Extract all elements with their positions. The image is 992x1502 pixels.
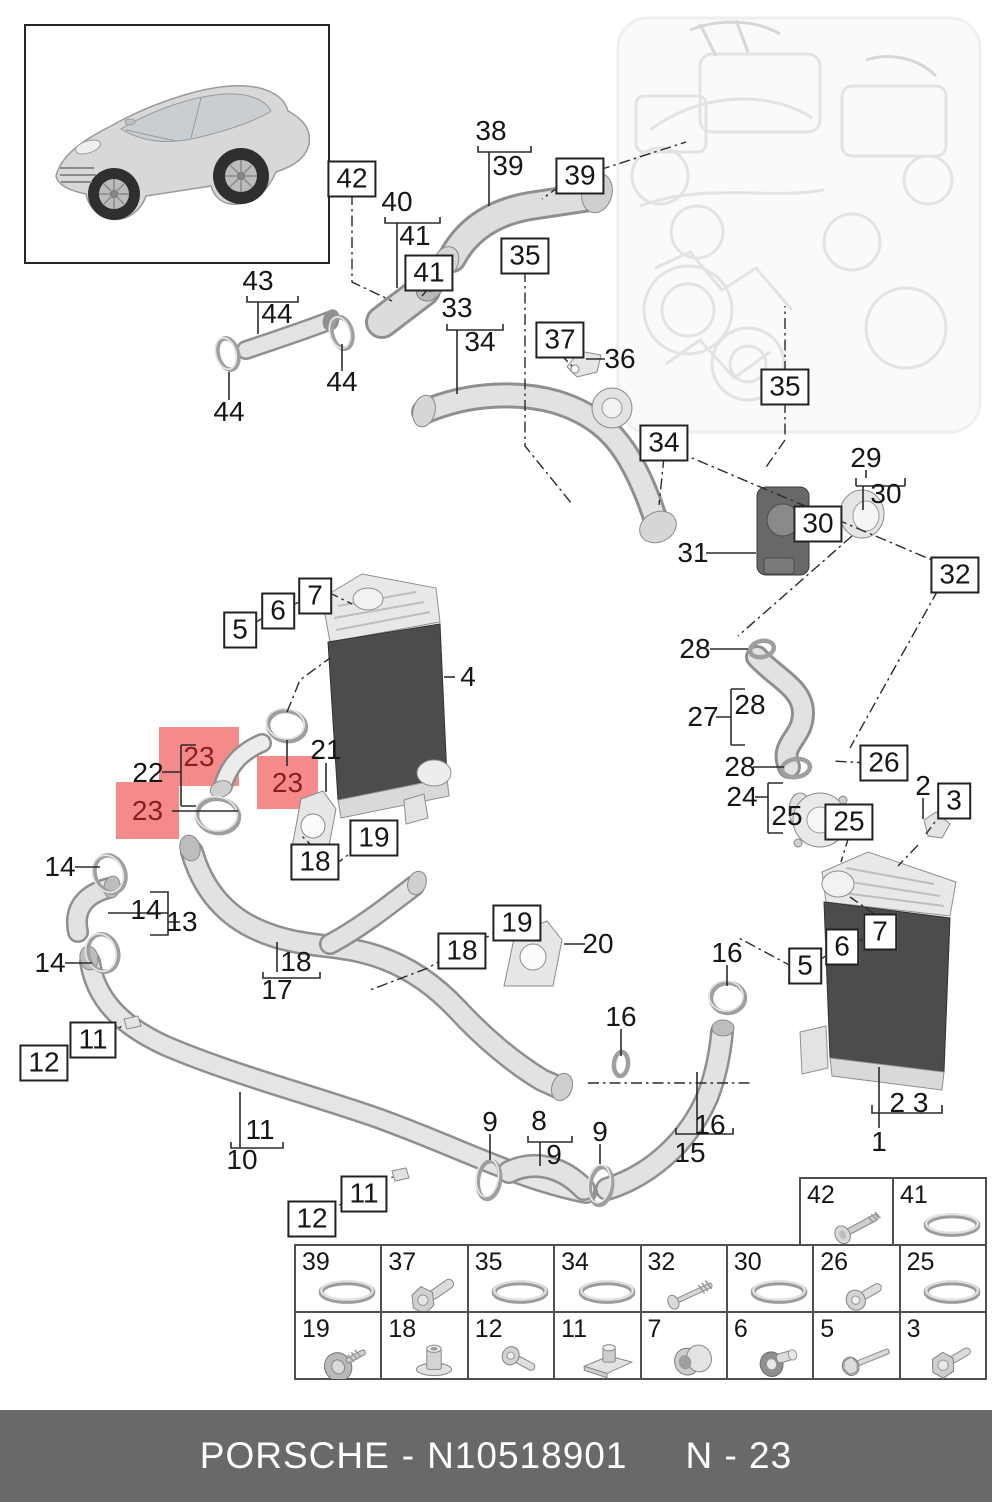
callout-15[interactable]: 15: [674, 1138, 705, 1168]
callout-18[interactable]: 18: [280, 947, 311, 977]
callout-23-selected[interactable]: 23: [132, 796, 163, 826]
callout-2-3[interactable]: 2 3: [890, 1088, 929, 1118]
callout-2[interactable]: 2: [915, 771, 931, 801]
callout-3[interactable]: 3: [937, 783, 971, 820]
callout-20[interactable]: 20: [582, 929, 613, 959]
callout-41[interactable]: 41: [404, 255, 453, 292]
callout-34[interactable]: 34: [639, 425, 688, 462]
callout-6[interactable]: 6: [825, 929, 859, 966]
callout-11[interactable]: 11: [340, 1176, 387, 1213]
callout-8[interactable]: 8: [531, 1106, 547, 1136]
callout-16[interactable]: 16: [605, 1002, 636, 1032]
callout-36[interactable]: 36: [604, 344, 635, 374]
callout-5[interactable]: 5: [223, 612, 257, 649]
callout-42[interactable]: 42: [327, 161, 376, 198]
callout-13[interactable]: 13: [166, 907, 197, 937]
callout-35[interactable]: 35: [760, 369, 809, 406]
callout-29[interactable]: 29: [850, 443, 881, 473]
callout-14[interactable]: 14: [34, 948, 65, 978]
callout-28[interactable]: 28: [679, 634, 710, 664]
brand-label: PORSCHE: [200, 1435, 390, 1477]
callout-39[interactable]: 39: [555, 158, 604, 195]
callout-32[interactable]: 32: [930, 557, 979, 594]
footer-bar: PORSCHE - N10518901 N - 23: [0, 1410, 992, 1502]
callout-16[interactable]: 16: [711, 938, 742, 968]
callout-7[interactable]: 7: [863, 914, 897, 951]
callout-22[interactable]: 22: [132, 758, 163, 788]
callout-25[interactable]: 25: [771, 801, 802, 831]
callout-28[interactable]: 28: [734, 690, 765, 720]
callout-19[interactable]: 19: [492, 905, 541, 942]
callout-27[interactable]: 27: [687, 702, 718, 732]
callout-18[interactable]: 18: [437, 933, 486, 970]
callout-23-selected[interactable]: 23: [183, 742, 214, 772]
callout-17[interactable]: 17: [261, 975, 292, 1005]
callout-5[interactable]: 5: [788, 948, 822, 985]
callout-9[interactable]: 9: [482, 1107, 498, 1137]
callout-24[interactable]: 24: [726, 782, 757, 812]
callout-11[interactable]: 11: [245, 1115, 274, 1145]
callout-44[interactable]: 44: [213, 397, 244, 427]
callout-39[interactable]: 39: [492, 151, 523, 181]
page-code: N - 23: [685, 1435, 792, 1477]
callout-9[interactable]: 9: [592, 1117, 608, 1147]
callout-19[interactable]: 19: [349, 820, 398, 857]
callout-1[interactable]: 1: [871, 1127, 887, 1157]
callout-43[interactable]: 43: [242, 266, 273, 296]
callout-16[interactable]: 16: [694, 1110, 725, 1140]
callout-41[interactable]: 41: [399, 221, 430, 251]
callout-21[interactable]: 21: [310, 735, 341, 765]
callout-12[interactable]: 12: [19, 1045, 68, 1082]
callout-34[interactable]: 34: [464, 327, 495, 357]
callout-44[interactable]: 44: [326, 367, 357, 397]
callout-23-selected[interactable]: 23: [272, 768, 303, 798]
callout-18[interactable]: 18: [290, 844, 339, 881]
callout-31[interactable]: 31: [677, 538, 708, 568]
callout-4[interactable]: 4: [460, 662, 476, 692]
footer-separator: -: [402, 1435, 415, 1477]
callout-7[interactable]: 7: [298, 578, 332, 615]
callout-10[interactable]: 10: [226, 1145, 257, 1175]
callout-44[interactable]: 44: [261, 299, 292, 329]
callout-33[interactable]: 33: [441, 293, 472, 323]
callout-38[interactable]: 38: [475, 116, 506, 146]
callout-30[interactable]: 30: [793, 506, 842, 543]
callout-25[interactable]: 25: [824, 804, 873, 841]
parts-catalog-page: 4239413537353430322625356719181918111211…: [0, 0, 992, 1502]
callout-37[interactable]: 37: [535, 322, 584, 359]
callout-26[interactable]: 26: [859, 745, 908, 782]
callout-layer: 4239413537353430322625356719181918111211…: [0, 0, 992, 1502]
callout-12[interactable]: 12: [287, 1201, 336, 1238]
part-number: N10518901: [427, 1435, 627, 1477]
callout-14[interactable]: 14: [130, 895, 161, 925]
callout-14[interactable]: 14: [44, 852, 75, 882]
callout-28[interactable]: 28: [724, 752, 755, 782]
callout-11[interactable]: 11: [69, 1022, 116, 1059]
callout-6[interactable]: 6: [261, 593, 295, 630]
callout-30[interactable]: 30: [870, 479, 901, 509]
callout-35[interactable]: 35: [500, 238, 549, 275]
callout-9[interactable]: 9: [546, 1140, 562, 1170]
callout-40[interactable]: 40: [381, 187, 412, 217]
